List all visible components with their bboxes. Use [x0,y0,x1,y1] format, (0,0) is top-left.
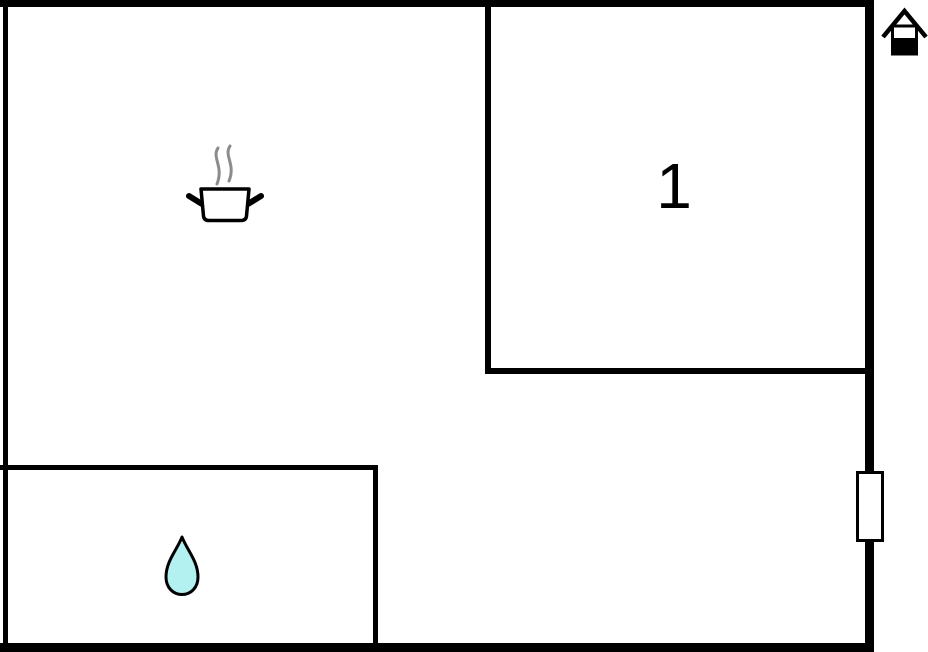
water-drop-shape [166,537,198,595]
pot-body [201,189,249,221]
kitchen-area [8,7,485,465]
house-logo-icon [880,6,928,58]
bathroom-right-wall [373,465,378,652]
outer-wall-top [0,0,872,7]
water-drop-icon [163,534,201,598]
steam-line-right [228,146,231,181]
outer-wall-bottom [0,643,874,652]
room1-bottom-wall [485,368,865,374]
room-1-label: 1 [634,146,714,226]
house-body-fill [891,38,918,56]
window-marker [856,471,884,542]
cooking-pot-icon [185,141,265,225]
steam-line-left [216,148,219,184]
outer-wall-right [865,0,874,652]
floor-plan: 1 [0,0,928,652]
